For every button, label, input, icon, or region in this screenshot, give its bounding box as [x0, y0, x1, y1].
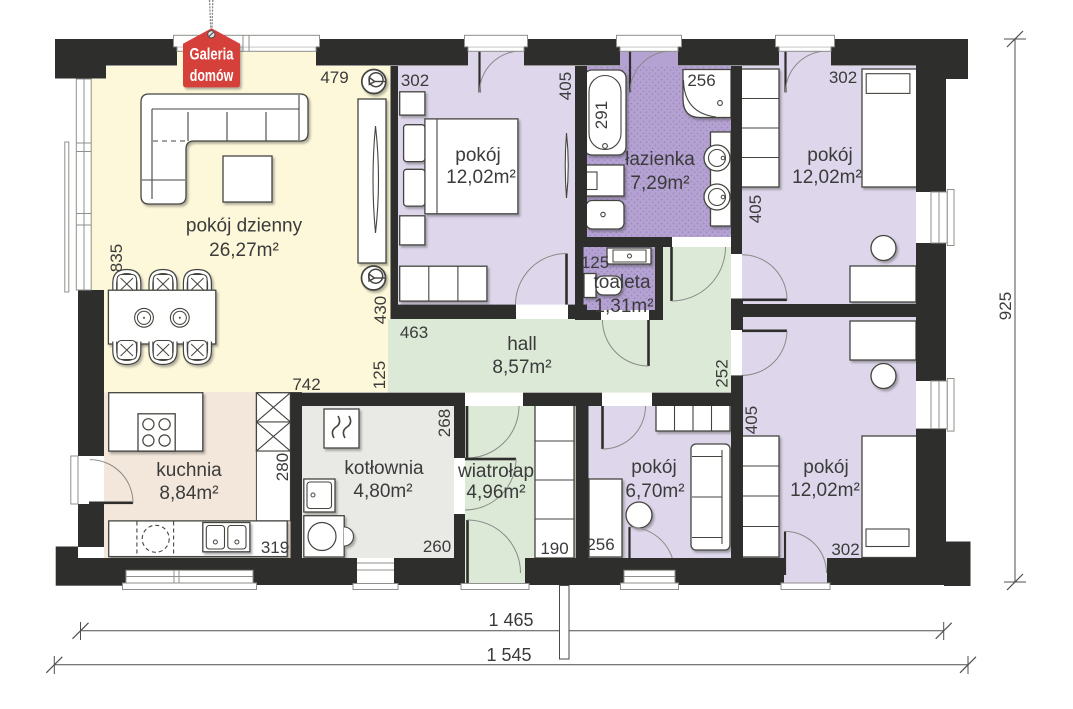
svg-text:302: 302 [831, 540, 859, 559]
svg-text:430: 430 [371, 296, 390, 324]
svg-text:190: 190 [540, 539, 568, 558]
svg-text:125: 125 [581, 253, 609, 272]
svg-text:kotłownia: kotłownia [344, 458, 424, 479]
svg-text:4,80m²: 4,80m² [353, 481, 412, 502]
svg-text:256: 256 [687, 71, 715, 90]
svg-text:302: 302 [829, 68, 857, 87]
svg-text:291: 291 [592, 101, 611, 129]
svg-text:12,02m²: 12,02m² [792, 167, 862, 188]
svg-text:toaleta: toaleta [593, 272, 650, 293]
svg-text:1,31m²: 1,31m² [594, 296, 653, 317]
svg-text:6,70m²: 6,70m² [625, 481, 684, 502]
svg-text:835: 835 [107, 244, 126, 272]
svg-text:domów: domów [190, 66, 234, 85]
svg-text:4,96m²: 4,96m² [466, 482, 525, 503]
svg-text:Galeria: Galeria [190, 45, 234, 64]
svg-text:łazienka: łazienka [625, 149, 695, 170]
svg-text:925: 925 [996, 292, 1015, 320]
svg-text:463: 463 [400, 323, 428, 342]
svg-text:268: 268 [435, 409, 454, 437]
svg-text:260: 260 [423, 537, 451, 556]
svg-text:wiatrołap: wiatrołap [457, 461, 534, 482]
svg-text:256: 256 [586, 535, 614, 554]
svg-text:pokój: pokój [803, 457, 848, 478]
svg-text:8,84m²: 8,84m² [159, 483, 218, 504]
svg-text:479: 479 [320, 68, 348, 87]
svg-text:319: 319 [261, 538, 289, 557]
svg-text:pokój: pokój [807, 145, 852, 166]
svg-text:252: 252 [713, 359, 732, 387]
svg-text:280: 280 [273, 453, 292, 481]
svg-text:302: 302 [401, 71, 429, 90]
svg-text:405: 405 [742, 406, 761, 434]
svg-text:pokój: pokój [631, 457, 676, 478]
svg-text:pokój dzienny: pokój dzienny [186, 216, 303, 237]
svg-text:125: 125 [370, 361, 389, 389]
svg-text:hall: hall [507, 334, 537, 355]
svg-text:pokój: pokój [455, 145, 500, 166]
svg-text:405: 405 [746, 195, 765, 223]
svg-text:1 545: 1 545 [486, 645, 531, 665]
svg-text:12,02m²: 12,02m² [790, 480, 860, 501]
svg-text:8,57m²: 8,57m² [492, 357, 551, 378]
svg-text:26,27m²: 26,27m² [209, 240, 279, 261]
svg-text:1 465: 1 465 [488, 610, 533, 630]
svg-text:kuchnia: kuchnia [156, 460, 222, 481]
svg-text:7,29m²: 7,29m² [630, 173, 689, 194]
svg-text:12,02m²: 12,02m² [446, 167, 516, 188]
svg-text:405: 405 [556, 72, 575, 100]
svg-text:742: 742 [292, 375, 320, 394]
